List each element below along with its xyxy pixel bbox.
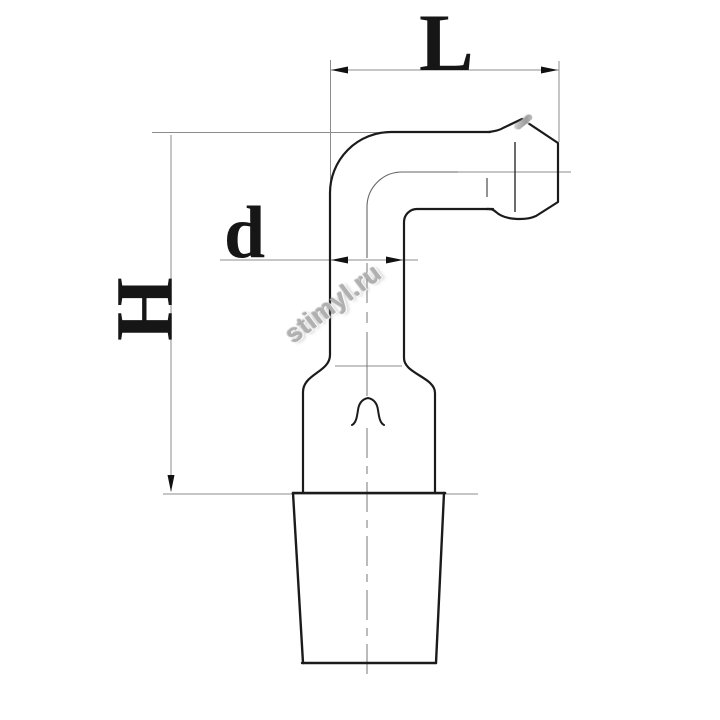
inner-profile-right <box>404 209 493 492</box>
bend-axis-curve <box>367 172 458 258</box>
ground-joint <box>293 493 445 663</box>
bend-axis-lines <box>367 172 458 258</box>
joint-left-wall <box>293 493 303 663</box>
arrow-d-left <box>331 257 348 264</box>
dimension-label-L: L <box>419 0 474 88</box>
hose-barb-outline <box>487 119 558 219</box>
technical-drawing-canvas: L d H stimyl.ru <box>0 0 720 720</box>
barb-detail-lines <box>487 142 515 212</box>
arrow-L-left <box>331 67 348 74</box>
joint-right-wall <box>436 493 444 663</box>
glass-adapter-diagram: L d H <box>0 0 720 720</box>
dimension-label-H: H <box>99 277 190 341</box>
arrow-L-right <box>541 67 558 74</box>
drip-tip-glyph <box>352 398 384 425</box>
dimension-label-d: d <box>224 192 265 274</box>
arrow-H-bottom <box>168 475 175 492</box>
